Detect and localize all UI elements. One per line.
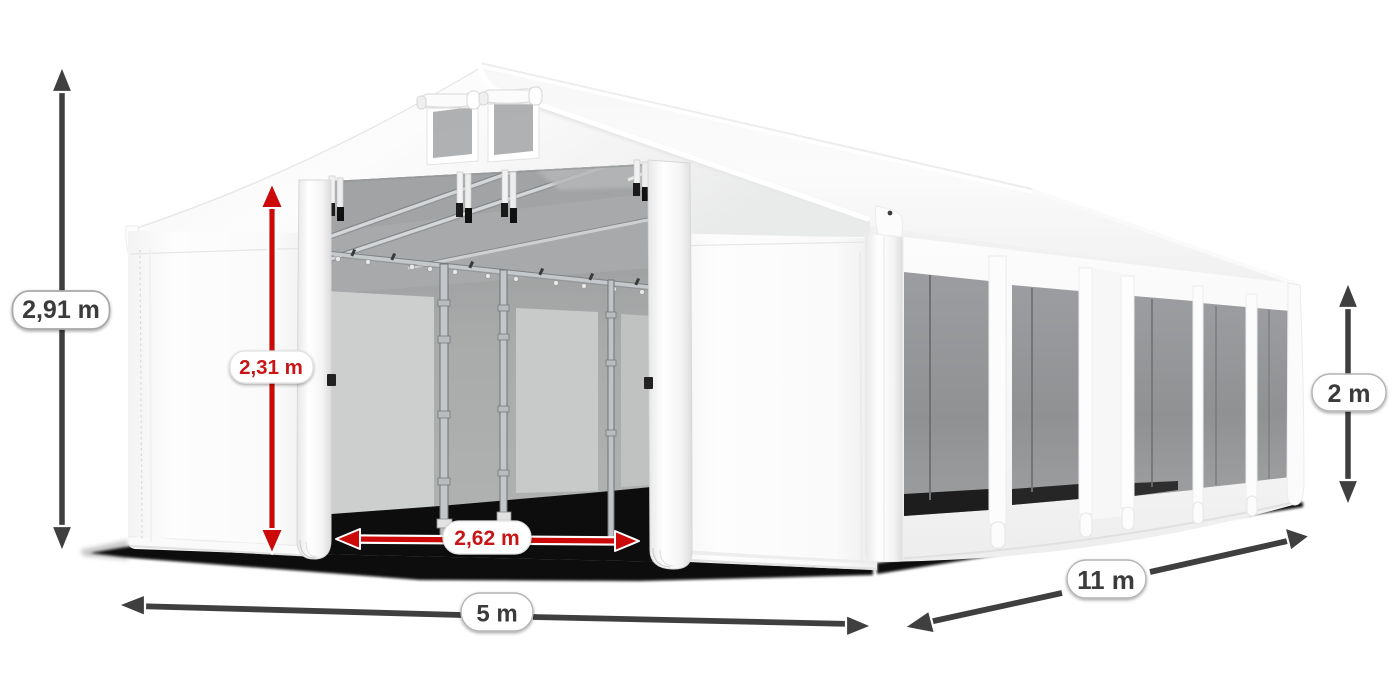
svg-text:5 m: 5 m [476, 601, 517, 628]
svg-text:2 m: 2 m [1327, 380, 1370, 408]
svg-text:2,62 m: 2,62 m [454, 527, 519, 550]
svg-text:11 m: 11 m [1077, 565, 1135, 595]
svg-text:2,91 m: 2,91 m [22, 296, 100, 324]
svg-text:2,31 m: 2,31 m [239, 356, 303, 379]
